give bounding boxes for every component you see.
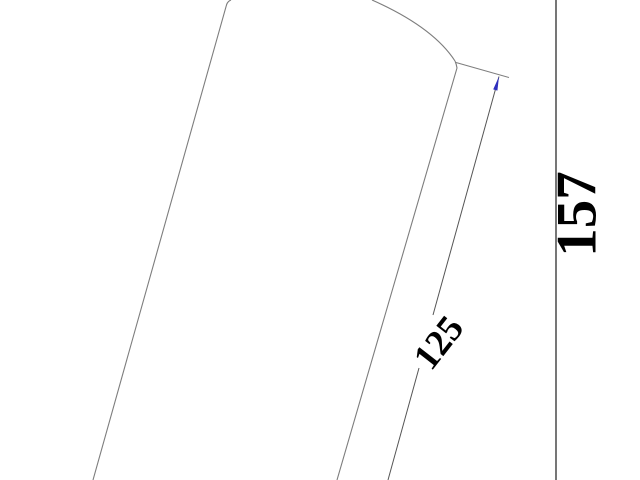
part-left-edge — [93, 0, 231, 480]
dimension-line-125-upper — [433, 77, 499, 316]
arrowhead-125-icon — [493, 77, 499, 91]
part-right-edge — [337, 61, 457, 480]
dimension-value-157: 157 — [546, 171, 609, 257]
part-top-arc — [372, 0, 455, 61]
dimension-line-125-lower — [388, 368, 419, 480]
cad-drawing-viewport: 125 157 — [0, 0, 640, 480]
technical-drawing-canvas: 125 157 — [0, 0, 640, 480]
extension-line-125 — [456, 63, 509, 78]
dimension-value-125: 125 — [406, 309, 472, 378]
